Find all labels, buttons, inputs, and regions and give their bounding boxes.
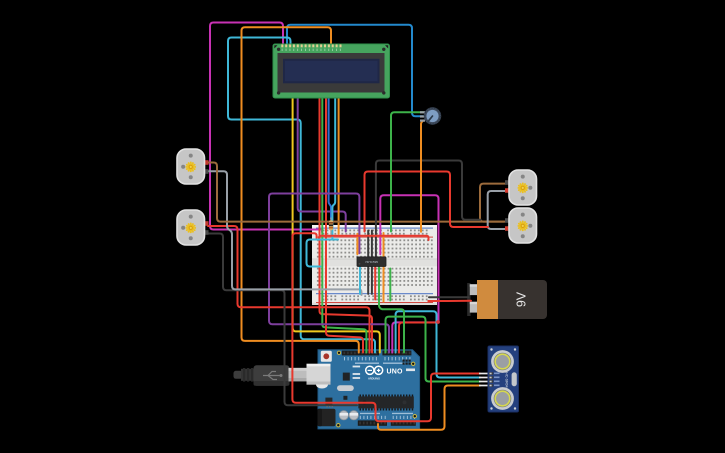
svg-text:HC-SR04: HC-SR04	[505, 372, 509, 387]
svg-text:ARDUINO: ARDUINO	[368, 377, 380, 381]
svg-text:9V: 9V	[515, 291, 529, 307]
svg-text:74HC595: 74HC595	[365, 260, 378, 264]
svg-text:UNO: UNO	[387, 368, 404, 375]
